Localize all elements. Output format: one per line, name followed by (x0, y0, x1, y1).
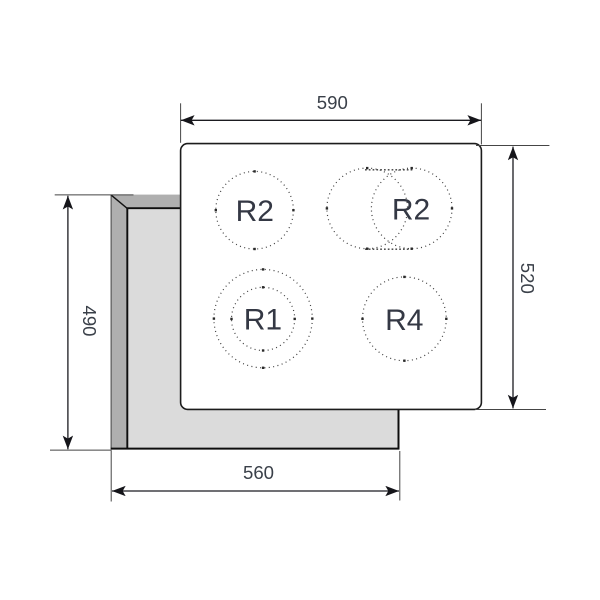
svg-text:R2: R2 (392, 193, 430, 226)
svg-text:R2: R2 (236, 195, 274, 228)
svg-text:R1: R1 (244, 304, 282, 337)
svg-text:520: 520 (517, 263, 538, 294)
svg-text:560: 560 (243, 462, 274, 483)
svg-text:490: 490 (79, 305, 100, 336)
svg-text:R4: R4 (385, 304, 423, 337)
svg-text:590: 590 (317, 92, 348, 113)
